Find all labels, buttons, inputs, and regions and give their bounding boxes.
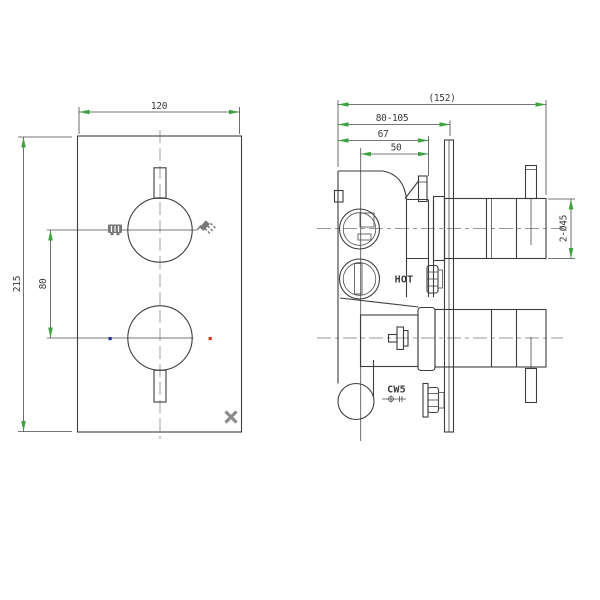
outlet-coupling-nut — [423, 384, 444, 418]
hot-indicator-dot — [209, 337, 212, 340]
valve-technical-drawing: 120 215 80 — [0, 0, 600, 600]
side-dim-overall-depth: (152) — [338, 93, 546, 195]
side-dim-body-depth: 67 — [338, 129, 429, 176]
dim-label-height: 215 — [12, 276, 23, 292]
shower-spray-icon — [198, 220, 216, 233]
upper-cartridge-barrel — [445, 166, 547, 259]
diverter-housing — [361, 315, 419, 367]
bath-filler-icon — [108, 225, 122, 236]
outlet-port-label: CW5 — [387, 385, 406, 396]
stop-screw — [419, 176, 428, 202]
hot-coupling-nut — [427, 266, 443, 294]
side-view: HOT CW5 (152) 80-105 — [317, 93, 575, 441]
technical-drawing-page: 120 215 80 — [0, 0, 600, 600]
upper-port — [340, 209, 380, 249]
front-dim-width: 120 — [79, 101, 240, 134]
dim-label-overall-depth: (152) — [428, 93, 455, 104]
front-dim-spacing: 80 — [38, 230, 51, 338]
side-dim-cartridge-depth: 50 — [361, 143, 429, 155]
cold-indicator-dot — [109, 337, 112, 340]
side-plate-and-cartridges — [418, 140, 546, 432]
front-view: 120 215 80 — [12, 101, 242, 439]
side-valve-body — [335, 171, 429, 420]
lower-lever-side — [526, 369, 537, 403]
dim-label-cartridge-depth: 50 — [391, 143, 402, 154]
crosswater-x-logo — [226, 412, 237, 423]
upper-lever-side — [526, 166, 537, 199]
flow-direction-icon — [382, 396, 406, 403]
hot-port-label: HOT — [395, 275, 414, 286]
outlet-elbow — [338, 360, 374, 420]
side-dim-mounting-range: 80-105 — [338, 113, 450, 136]
front-plate — [47, 130, 242, 439]
hot-port — [340, 259, 380, 299]
side-dimensions: (152) 80-105 67 50 2-Ø45 — [338, 93, 575, 259]
dim-label-width: 120 — [151, 101, 168, 112]
dim-label-mounting-range: 80-105 — [376, 113, 409, 124]
dim-label-spacing: 80 — [38, 278, 49, 289]
dim-label-body-depth: 67 — [378, 129, 389, 140]
dim-label-handle-diameter: 2-Ø45 — [559, 215, 570, 242]
